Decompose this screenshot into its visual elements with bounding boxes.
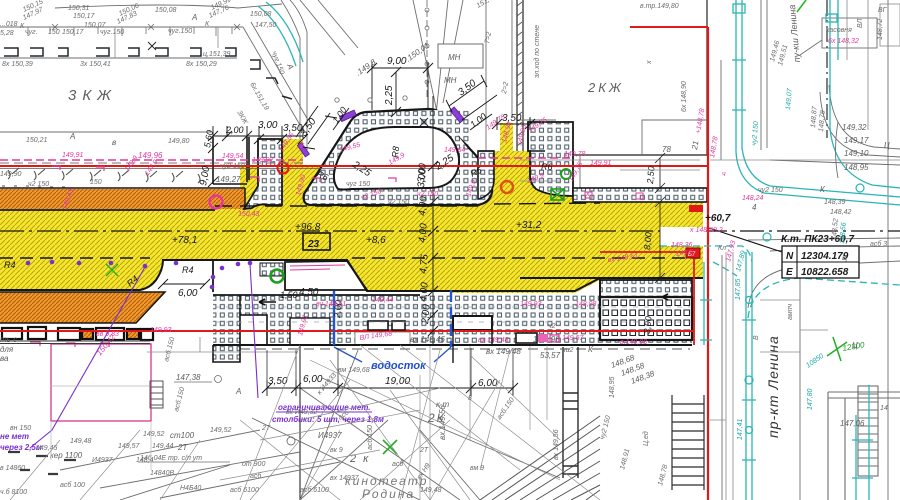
svg-text:3,50: 3,50: [268, 376, 288, 387]
svg-text:6,00: 6,00: [478, 378, 498, 389]
svg-text:1,50: 1,50: [280, 290, 298, 300]
svg-text:23: 23: [307, 239, 320, 250]
svg-text:вн 150: вн 150: [10, 425, 31, 432]
svg-text:асб.150: асб.150: [366, 425, 374, 450]
svg-text:ц,151,39: ц,151,39: [203, 51, 230, 58]
svg-text:2,25: 2,25: [384, 85, 395, 106]
svg-text:водосток: водосток: [371, 360, 427, 372]
svg-text:N: N: [786, 251, 794, 262]
svg-text:ч2 150: ч2 150: [417, 191, 438, 198]
svg-text:R4: R4: [182, 265, 194, 275]
svg-text:4,00: 4,00: [417, 195, 430, 216]
svg-text:вм 9: вм 9: [470, 465, 484, 472]
svg-text:4: 4: [752, 203, 757, 212]
svg-text:150,08: 150,08: [250, 11, 272, 18]
svg-text:6,00: 6,00: [303, 374, 323, 385]
svg-text:А: А: [235, 387, 241, 396]
svg-text:6х 148,32: 6х 148,32: [828, 38, 859, 45]
svg-text:5,28: 5,28: [0, 30, 14, 37]
svg-text:150,31: 150,31: [68, 5, 90, 12]
svg-text:МН: МН: [444, 76, 457, 85]
svg-text:150: 150: [90, 179, 102, 186]
svg-text:149,92: 149,92: [252, 157, 274, 164]
svg-text:А: А: [69, 132, 75, 141]
svg-text:А: А: [191, 13, 197, 22]
svg-text:2,50: 2,50: [645, 166, 657, 185]
svg-text:3,00: 3,00: [416, 167, 429, 188]
svg-text:149,10: 149,10: [844, 149, 869, 158]
svg-text:149,17: 149,17: [844, 136, 869, 145]
svg-text:вм 149,68: вм 149,68: [338, 367, 370, 374]
svg-text:3,00: 3,00: [258, 120, 278, 131]
svg-text:149,44: 149,44: [372, 297, 394, 304]
svg-text:чу2 150: чу2 150: [758, 187, 783, 194]
svg-text:8х 150,39: 8х 150,39: [2, 61, 33, 68]
svg-text:для: для: [0, 345, 14, 354]
svg-text:ампч: ампч: [787, 303, 794, 320]
svg-text:столбики: 5 шт, через 1,8м: столбики: 5 шт, через 1,8м: [272, 415, 384, 424]
svg-text:ВЛ: ВЛ: [857, 18, 864, 28]
svg-text:3КЖ: 3КЖ: [68, 87, 117, 104]
svg-text:ч2: ч2: [548, 323, 556, 330]
svg-text:148,39: 148,39: [824, 199, 846, 206]
svg-text:чуг.150: чуг.150: [100, 29, 124, 36]
svg-text:150,17: 150,17: [62, 29, 85, 36]
svg-text:касовня: касовня: [826, 27, 852, 34]
svg-text:Кл: Кл: [718, 245, 726, 252]
svg-text:в.149,08: в.149,08: [620, 339, 647, 346]
svg-text:149,57: 149,57: [562, 335, 585, 342]
svg-text:149,44: 149,44: [152, 443, 174, 450]
svg-text:3х 150,41: 3х 150,41: [80, 61, 111, 68]
svg-text:148,95: 148,95: [609, 376, 616, 398]
svg-text:147,80: 147,80: [807, 388, 814, 410]
svg-text:+31,2: +31,2: [516, 220, 542, 231]
svg-text:149,32: 149,32: [842, 123, 867, 132]
svg-text:+78,1: +78,1: [172, 235, 197, 246]
svg-text:R4: R4: [4, 260, 16, 270]
svg-text:149,64: 149,64: [444, 147, 466, 154]
svg-text:асб 6100: асб 6100: [230, 486, 259, 494]
svg-text:149,78: 149,78: [564, 151, 586, 158]
svg-text:в: в: [112, 138, 116, 147]
svg-text:асб 3: асб 3: [870, 240, 887, 248]
svg-text:6,00: 6,00: [178, 288, 198, 299]
svg-text:+60,7: +60,7: [705, 213, 731, 224]
svg-text:4,75: 4,75: [418, 253, 431, 274]
svg-text:асб 100: асб 100: [60, 481, 85, 489]
svg-text:150,07: 150,07: [84, 22, 107, 29]
svg-text:8х 150,29: 8х 150,29: [186, 61, 217, 68]
svg-text:3,00: 3,00: [642, 316, 653, 334]
svg-text:4,50: 4,50: [299, 287, 319, 298]
svg-text:14: 14: [880, 405, 888, 412]
svg-text:53,57: 53,57: [540, 351, 561, 360]
svg-text:чуг.: чуг.: [25, 29, 38, 36]
svg-text:147,06: 147,06: [840, 419, 865, 428]
svg-text:ч.б 8100: ч.б 8100: [0, 488, 27, 496]
svg-text:149,96: 149,96: [138, 151, 163, 160]
svg-text:148,24: 148,24: [742, 195, 764, 202]
svg-text:ть с: ть с: [0, 335, 17, 344]
svg-text:4,00: 4,00: [417, 222, 430, 243]
svg-text:21: 21: [690, 140, 701, 151]
svg-text:Родина: Родина: [362, 487, 415, 500]
svg-text:149,57: 149,57: [118, 443, 141, 450]
svg-text:вх 149,46: вх 149,46: [410, 335, 445, 344]
svg-text:2,00: 2,00: [225, 125, 244, 135]
svg-text:148,42: 148,42: [830, 209, 852, 216]
svg-text:...018: ...018: [0, 21, 18, 28]
svg-text:вх 149/48: вх 149/48: [486, 347, 521, 356]
svg-text:х: х: [646, 60, 653, 65]
svg-text:150: 150: [48, 29, 60, 36]
svg-text:МН: МН: [448, 53, 461, 62]
svg-text:149,90: 149,90: [0, 171, 22, 178]
svg-text:149,48: 149,48: [420, 487, 442, 494]
svg-text:вк 9: вк 9: [330, 447, 343, 454]
svg-text:Б: Б: [300, 143, 305, 150]
svg-text:149,80: 149,80: [168, 138, 190, 145]
svg-text:В: В: [753, 335, 760, 340]
svg-text:149,91: 149,91: [62, 152, 84, 159]
svg-text:2КЖ: 2КЖ: [587, 80, 624, 95]
svg-text:14840В: 14840В: [150, 470, 174, 477]
svg-text:ч2 150: ч2 150: [388, 199, 409, 206]
svg-text:Ц: Ц: [852, 341, 858, 350]
svg-text:чуг.150: чуг.150: [168, 28, 192, 35]
svg-text:+96,8: +96,8: [295, 222, 321, 233]
svg-text:асб: асб: [392, 460, 404, 468]
svg-text:вх 14937: вх 14937: [330, 475, 360, 482]
svg-text:Ц.ед: Ц.ед: [642, 431, 650, 446]
svg-text:8: 8: [468, 395, 472, 402]
svg-text:ст100: ст100: [170, 431, 195, 440]
svg-text:8,00: 8,00: [642, 232, 653, 250]
svg-text:150,08: 150,08: [155, 7, 177, 14]
svg-text:148,36: 148,36: [671, 242, 693, 249]
svg-text:149,93: 149,93: [150, 327, 172, 334]
svg-text:E: E: [786, 267, 793, 278]
svg-text:ва: ва: [0, 354, 9, 363]
svg-text:не мет: не мет: [0, 432, 29, 441]
svg-text:149,48: 149,48: [70, 438, 92, 445]
svg-text:эл.ход по стене: эл.ход по стене: [533, 25, 541, 78]
svg-text:ч: ч: [722, 171, 726, 178]
svg-text:2Т: 2Т: [177, 443, 188, 452]
svg-text:148,95: 148,95: [844, 163, 869, 172]
svg-text:2Т: 2Т: [261, 425, 271, 432]
svg-text:149,52: 149,52: [210, 427, 232, 434]
svg-text:147,50: 147,50: [255, 22, 277, 29]
svg-text:2Т: 2Т: [419, 447, 429, 454]
svg-text:чи2: чи2: [562, 347, 574, 354]
svg-text:4,00: 4,00: [418, 281, 431, 302]
svg-text:147,38: 147,38: [176, 373, 201, 382]
svg-text:149,91: 149,91: [590, 160, 612, 167]
svg-text:78: 78: [662, 145, 671, 154]
svg-text:Ц: Ц: [884, 141, 890, 150]
svg-text:Н4Б40: Н4Б40: [180, 485, 201, 492]
svg-text:150,43: 150,43: [238, 211, 260, 218]
svg-text:вч 149,61: вч 149,61: [316, 301, 346, 308]
svg-text:И4937: И4937: [92, 457, 114, 464]
svg-text:10822.658: 10822.658: [801, 267, 849, 278]
svg-text:ВГ: ВГ: [878, 7, 888, 14]
svg-text:149,54: 149,54: [222, 153, 244, 160]
svg-text:2 к: 2 к: [349, 453, 370, 465]
svg-text:147,85: 147,85: [735, 278, 742, 300]
svg-text:R6: R6: [541, 162, 553, 172]
svg-text:вк И49,32: вк И49,32: [286, 409, 318, 416]
svg-text:вв 9,83: вв 9,83: [96, 331, 119, 338]
svg-text:146,04Е тр. с/п ут: 146,04Е тр. с/п ут: [140, 455, 202, 462]
svg-text:х 148,60 2: х 148,60 2: [689, 227, 723, 234]
svg-text:147,41: 147,41: [737, 418, 744, 440]
svg-text:в.тр.149,80: в.тр.149,80: [640, 3, 679, 10]
svg-text:чуг 150: чуг 150: [346, 181, 370, 188]
svg-text:чу2 150: чу2 150: [220, 163, 245, 170]
svg-text:150,21: 150,21: [26, 137, 48, 144]
svg-text:149,52: 149,52: [143, 431, 165, 438]
svg-text:+8,6: +8,6: [366, 235, 386, 246]
svg-text:х: х: [585, 191, 590, 198]
svg-text:кер 1100: кер 1100: [50, 451, 83, 460]
svg-text:Ц: Ц: [842, 255, 847, 262]
svg-text:пр-кт Ленина: пр-кт Ленина: [765, 335, 781, 438]
svg-text:вх 149,48: вх 149,48: [478, 337, 509, 344]
svg-text:150,17: 150,17: [73, 13, 96, 20]
svg-text:148,72: 148,72: [877, 18, 884, 40]
svg-text:6х 148,90: 6х 148,90: [681, 81, 688, 112]
svg-text:149,27: 149,27: [216, 175, 241, 184]
